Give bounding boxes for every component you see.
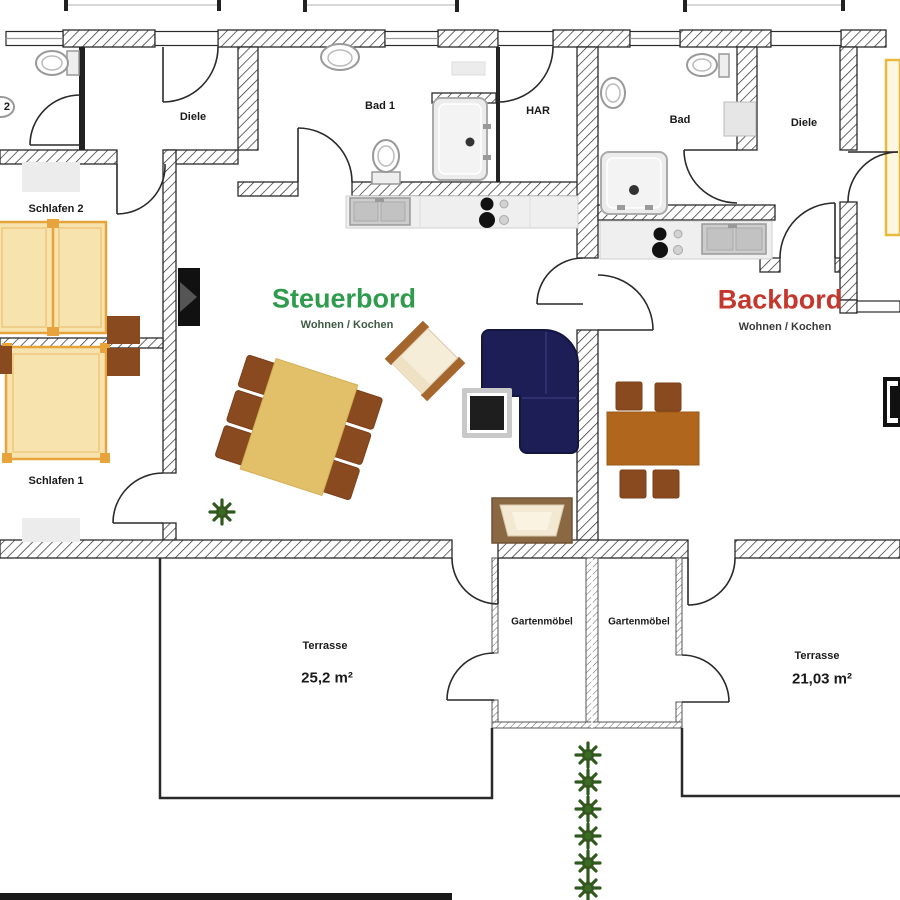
lower-wall-edge <box>0 893 452 900</box>
room-label-har: HAR <box>526 105 550 117</box>
room-label-bad1: Bad 1 <box>365 100 395 112</box>
kitchen-steuerbord <box>346 196 578 228</box>
armchair-bottom <box>492 498 572 543</box>
apartment-subtitle-backbord: Wohnen / Kochen <box>739 321 832 333</box>
room-label-bad-right: Bad <box>670 114 691 126</box>
shed-walls <box>492 558 682 728</box>
wall-stubs <box>64 0 845 12</box>
dining-set-backbord <box>607 382 699 498</box>
terrace-area-left: 25,2 m² <box>301 670 353 687</box>
toilet-icon-bad-right <box>687 54 729 77</box>
dining-set-steuerbord <box>214 350 385 504</box>
double-bed <box>0 219 106 336</box>
terrace-outlines <box>160 558 900 798</box>
room-label-diele-right: Diele <box>791 117 817 129</box>
kitchen-backbord <box>600 221 772 259</box>
toilet-icon-bad2 <box>36 51 79 75</box>
floorplan: Bad 2 Diele Bad 1 HAR Schlafen 2 Schlafe… <box>0 0 900 900</box>
plant-icon-living <box>210 500 234 524</box>
sink-icon-bad-right <box>601 78 625 108</box>
tv-icon-bedroom-wall <box>178 268 200 326</box>
terrace-area-right: 21,03 m² <box>792 671 852 688</box>
tv-icon-backbord <box>885 379 900 425</box>
apartment-title-steuerbord: Steuerbord <box>272 284 416 315</box>
terrace-label-left: Terrasse <box>302 640 347 652</box>
kitchen-sink-icon-backbord <box>702 224 766 254</box>
sink-icon-bad1 <box>321 44 359 70</box>
single-bed <box>2 343 110 463</box>
armchair-icon <box>385 321 466 402</box>
shower-icon-bad1 <box>433 98 491 180</box>
washer-icon <box>724 102 756 136</box>
room-label-schlafen1: Schlafen 1 <box>28 475 83 487</box>
plant-row <box>576 743 600 900</box>
apartment-title-backbord: Backbord <box>718 285 843 316</box>
room-label-diele-left: Diele <box>180 111 206 123</box>
apartment-subtitle-steuerbord: Wohnen / Kochen <box>301 319 394 331</box>
room-label-gartenmoebel-left: Gartenmöbel <box>511 617 573 628</box>
coffee-table <box>462 388 512 438</box>
terrace-label-right: Terrasse <box>794 650 839 662</box>
bed-partial-right <box>886 60 900 235</box>
room-label-schlafen2: Schlafen 2 <box>28 203 83 215</box>
room-label-bad2: Bad 2 <box>0 101 10 113</box>
kitchen-sink-icon <box>350 198 410 225</box>
room-label-gartenmoebel-right: Gartenmöbel <box>608 617 670 628</box>
toilet-icon-bad1 <box>372 140 400 184</box>
shower-icon-bad-right <box>601 152 667 214</box>
floorplan-graphics <box>0 0 900 900</box>
